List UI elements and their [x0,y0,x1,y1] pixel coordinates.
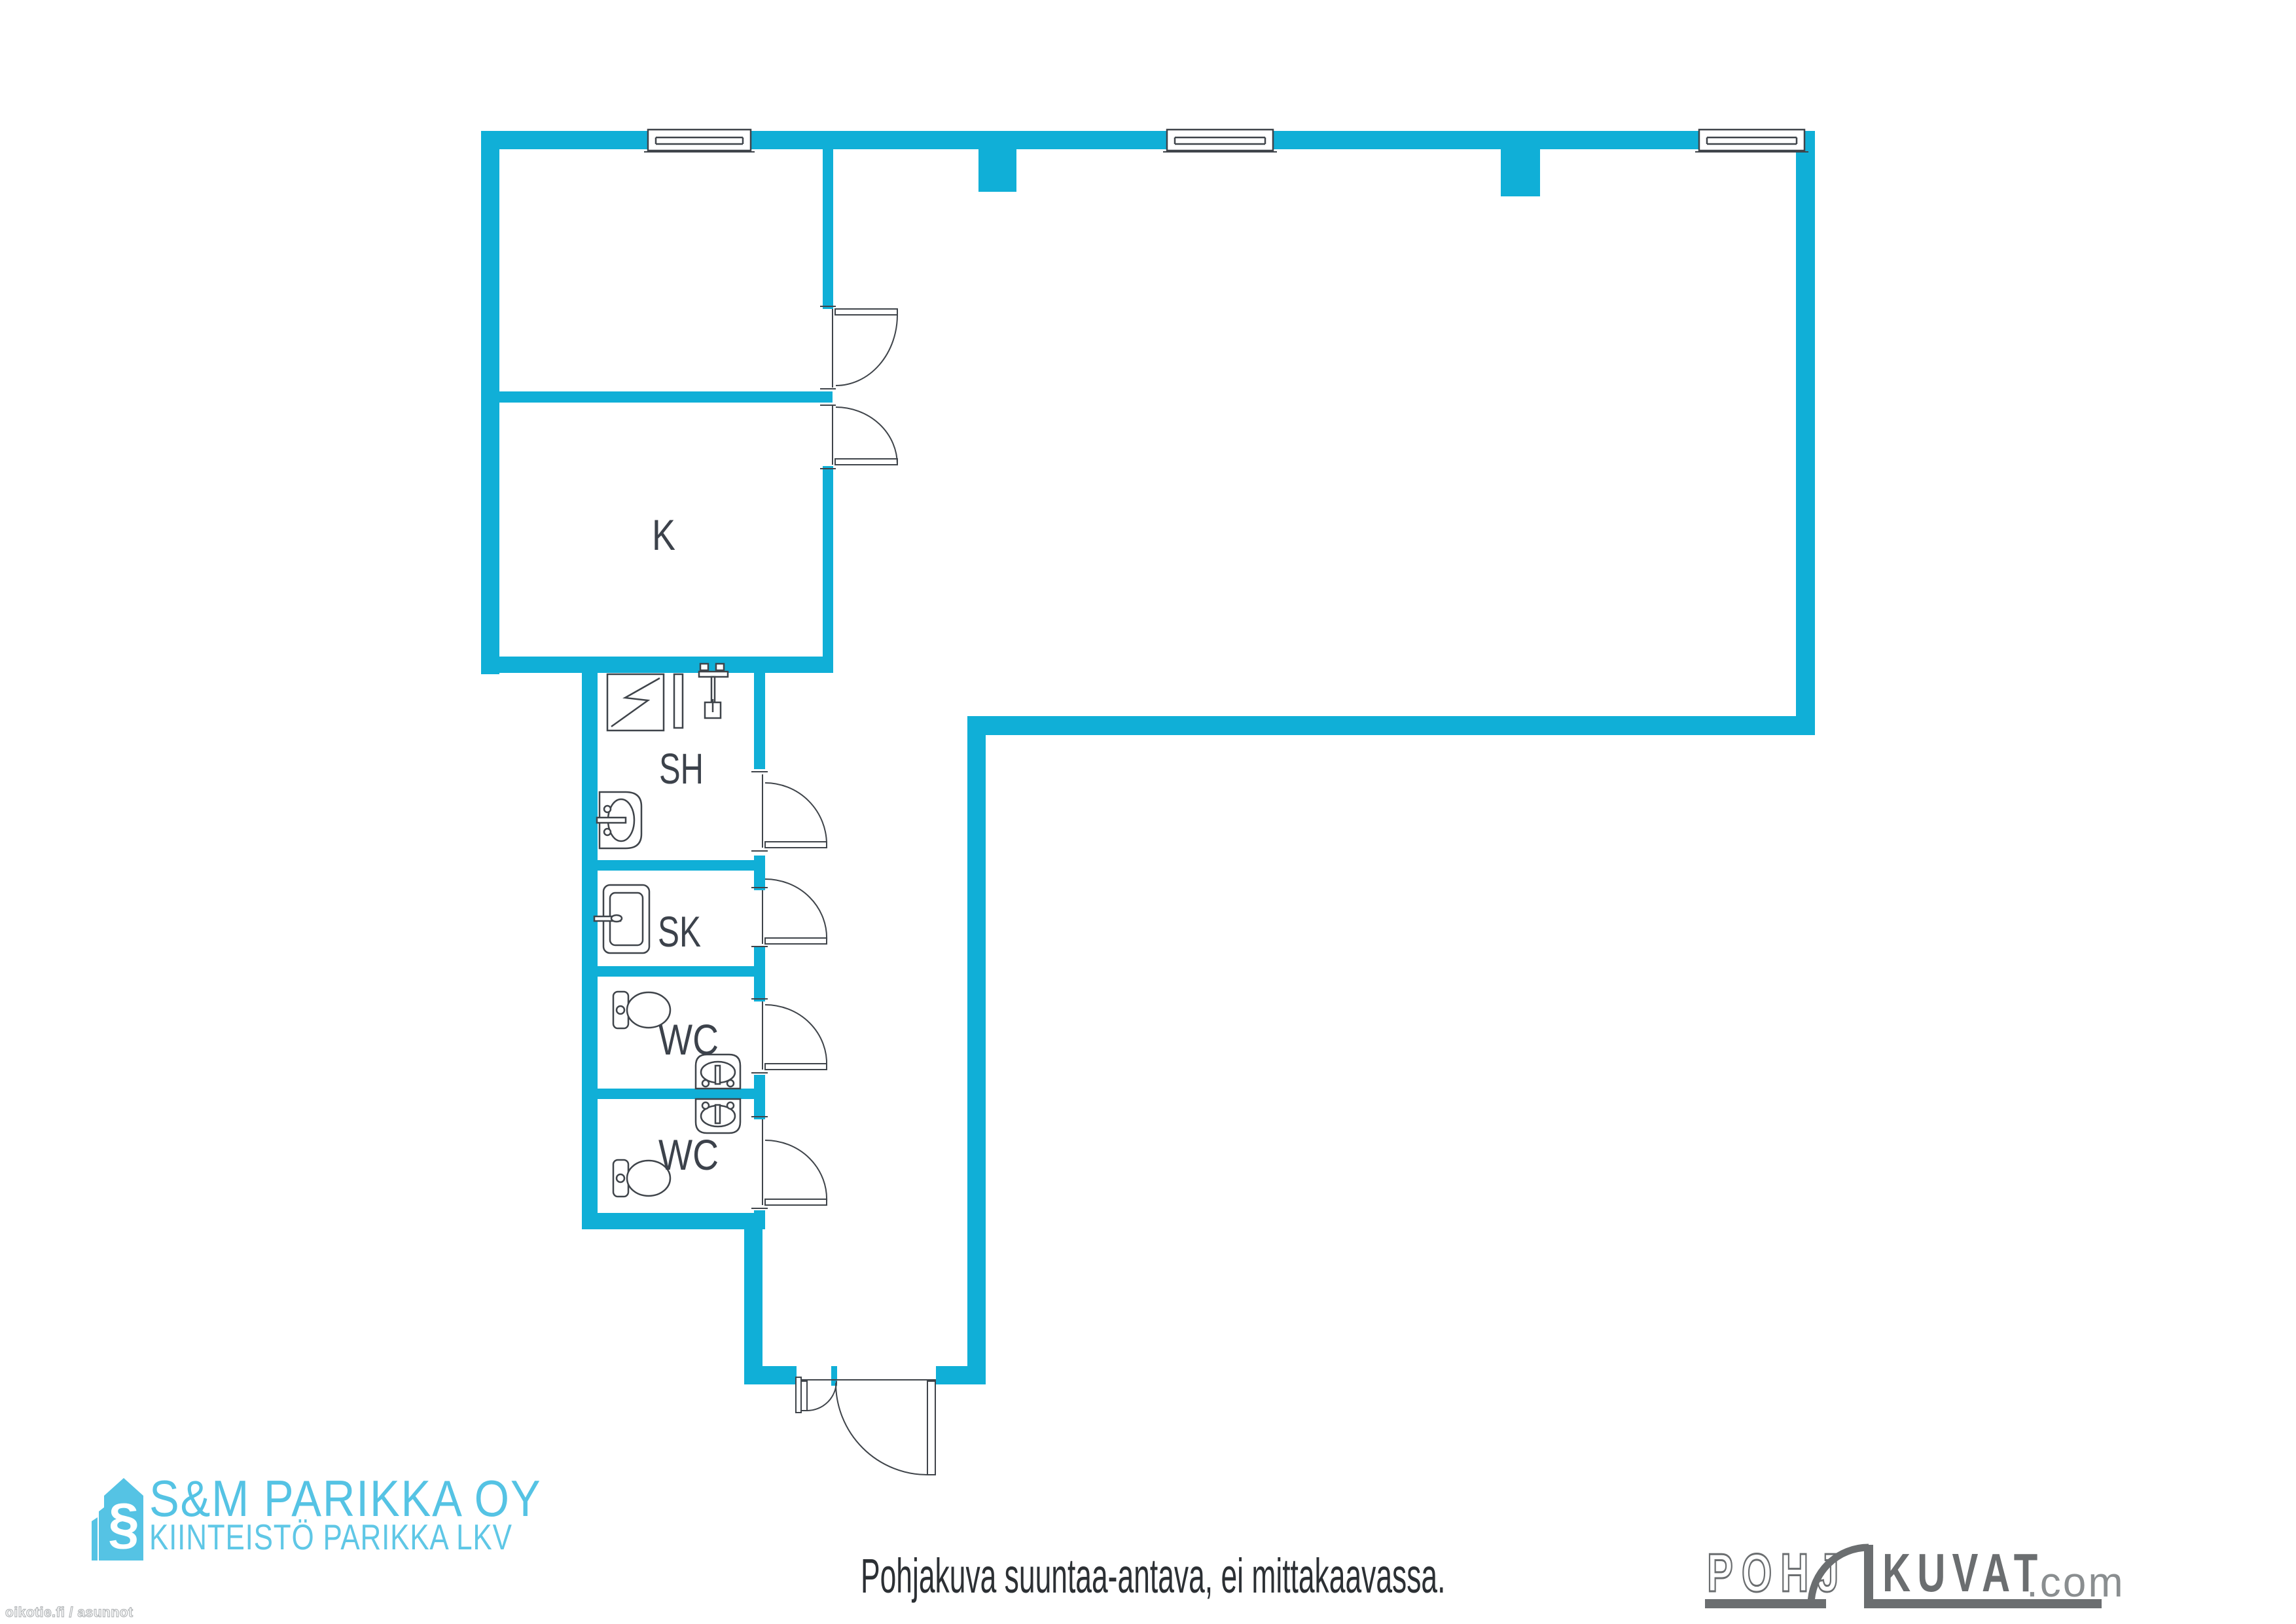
wall-pillar-stub-1 [978,149,1016,192]
wall-divider-upper-k [499,391,833,403]
wall-left [481,131,499,674]
wall-entry-left [744,1213,762,1384]
wall-k-bottom [481,657,833,673]
corner-watermark: oikotie.fi / asunnot [5,1605,134,1621]
door-k-room [833,406,897,465]
disclaimer-text: Pohjakuva suuntaa-antava, ei mittakaavas… [861,1548,1445,1604]
wall-corridor-left-seg1 [754,673,765,769]
agency-subtitle: KIINTEISTÖ PARIKKA LKV [149,1516,512,1558]
floor-plan: K SH SK WC WC [0,0,2296,1624]
door-wc1 [762,1001,827,1070]
wall-wc2-bottom [582,1213,765,1229]
room-label-wc1: WC [658,1015,719,1064]
wall-right [1796,131,1815,735]
portal-logo: POHJ KUVAT .com [1702,1532,2160,1623]
door-sk [762,879,827,944]
wall-corridor-right [967,716,986,1384]
wall-divider-sk-wc1 [598,966,765,977]
wall-vertical-upper-seg [823,149,833,309]
wall-divider-sh-sk [598,860,765,871]
cleaning-cabinet-icon [594,885,649,953]
paragraph-glyph: § [108,1492,139,1555]
agency-logo: § S&M PARIKKA OY KIINTEISTÖ PARIKKA LKV [85,1466,543,1597]
window-icon [644,130,755,152]
portal-underline-right [1873,1599,2102,1608]
door-sh [762,774,827,848]
door-upper-room [833,309,897,388]
shower-drain-icon [607,674,664,731]
window-icon [1695,130,1808,152]
shower-screen-icon [674,674,683,728]
wall-divider-wc1-wc2 [598,1089,765,1099]
door-wc2 [762,1119,827,1205]
wall-smallrooms-left [582,673,598,1229]
room-label-sh: SH [659,744,704,793]
door-entrance [796,1377,936,1475]
wall-entry-bottom-right [936,1366,986,1384]
wall-vertical-lower-seg [823,466,833,657]
washbasin-icon [696,1099,740,1133]
window-icon [1163,130,1277,152]
house-paragraph-icon: § [85,1466,157,1564]
wall-pillar-stub-2 [1501,149,1540,196]
shower-mixer-icon [699,664,728,718]
washbasin-icon [597,792,641,848]
wall-bigroom-bottom [967,716,1815,735]
wall-entry-bottom-left [744,1366,797,1384]
room-label-wc2: WC [658,1130,719,1179]
doors [751,306,936,1475]
room-label-sk: SK [658,907,701,956]
portal-underline-left [1705,1599,1826,1608]
room-label-k: K [652,511,675,559]
portal-logo-part2: KUVAT [1882,1542,2044,1604]
